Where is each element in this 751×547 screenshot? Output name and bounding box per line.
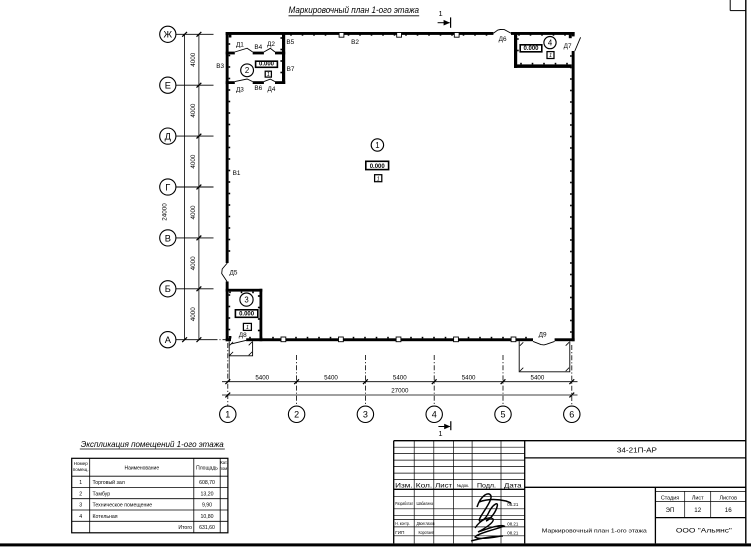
svg-text:В2: В2 [351, 39, 359, 46]
svg-text:0.000: 0.000 [370, 164, 386, 170]
svg-text:В6: В6 [254, 85, 262, 92]
svg-text:5400: 5400 [462, 374, 476, 381]
svg-text:Лист: Лист [692, 495, 704, 501]
svg-text:2: 2 [245, 66, 249, 75]
svg-text:13,20: 13,20 [201, 491, 214, 497]
svg-text:В4: В4 [254, 44, 262, 51]
svg-text:4: 4 [548, 39, 553, 48]
svg-text:27000: 27000 [391, 388, 409, 395]
svg-text:08.21: 08.21 [507, 530, 519, 535]
svg-text:1: 1 [79, 480, 82, 486]
svg-text:5400: 5400 [393, 374, 407, 381]
svg-text:5400: 5400 [531, 374, 545, 381]
svg-text:Н. контр.: Н. контр. [395, 521, 410, 526]
svg-text:Техническое помещение: Техническое помещение [93, 503, 153, 509]
svg-text:608,70: 608,70 [199, 480, 215, 486]
svg-text:Листов: Листов [719, 495, 737, 501]
svg-text:34-21П-АР: 34-21П-АР [617, 445, 657, 454]
svg-text:08.21: 08.21 [507, 522, 519, 527]
svg-text:Двоеглазов: Двоеглазов [417, 521, 435, 526]
svg-text:4000: 4000 [190, 154, 197, 169]
svg-text:ГИП: ГИП [395, 530, 404, 535]
svg-text:1: 1 [246, 325, 249, 331]
svg-text:Д6: Д6 [499, 36, 507, 43]
svg-text:Д8: Д8 [239, 332, 247, 339]
svg-text:В5: В5 [286, 39, 294, 46]
svg-text:9,90: 9,90 [202, 503, 212, 509]
svg-text:Д3: Д3 [236, 86, 244, 93]
svg-text:0.000: 0.000 [523, 46, 539, 52]
svg-text:4000: 4000 [190, 205, 197, 220]
svg-text:2: 2 [79, 491, 82, 497]
svg-text:Итого: Итого [178, 525, 192, 531]
svg-text:А: А [165, 335, 172, 345]
svg-text:4000: 4000 [190, 256, 197, 271]
svg-text:1: 1 [439, 9, 443, 18]
svg-text:Маркировочный план 1-ого этажа: Маркировочный план 1-ого этажа [289, 5, 420, 15]
svg-text:4000: 4000 [190, 52, 197, 67]
svg-text:5400: 5400 [324, 374, 338, 381]
svg-text:1: 1 [377, 176, 380, 182]
svg-text:Торговый зал: Торговый зал [93, 479, 125, 486]
svg-text:4: 4 [432, 410, 437, 420]
svg-text:5400: 5400 [255, 374, 269, 381]
svg-text:Д: Д [165, 132, 172, 142]
svg-text:Наименование: Наименование [124, 466, 159, 472]
svg-text:Д5: Д5 [230, 269, 238, 276]
svg-text:Б: Б [165, 284, 171, 294]
svg-text:пом.: пом. [220, 466, 229, 471]
svg-text:Дата: Дата [504, 483, 522, 489]
svg-text:5: 5 [500, 410, 505, 420]
svg-text:0.000: 0.000 [239, 312, 255, 318]
svg-text:В3: В3 [216, 63, 224, 70]
svg-text:Подл.: Подл. [477, 483, 496, 489]
svg-text:16: 16 [725, 507, 732, 514]
svg-text:Котельная: Котельная [93, 514, 118, 520]
svg-text:10,80: 10,80 [201, 514, 214, 520]
svg-text:Д7: Д7 [564, 43, 572, 50]
svg-text:1: 1 [549, 53, 552, 59]
svg-text:В1: В1 [233, 170, 241, 177]
svg-text:Г: Г [165, 182, 170, 192]
svg-text:1: 1 [375, 141, 379, 150]
svg-text:Коротаев: Коротаев [419, 530, 435, 535]
svg-text:Кат.: Кат. [220, 460, 227, 465]
svg-text:4000: 4000 [190, 307, 197, 322]
svg-text:ЭП: ЭП [666, 507, 675, 514]
svg-text:631,60: 631,60 [199, 525, 215, 531]
svg-text:Д1: Д1 [236, 42, 244, 49]
svg-text:Разработал: Разработал [395, 501, 413, 506]
svg-text:помещ.: помещ. [73, 467, 89, 472]
svg-text:В: В [165, 233, 171, 243]
svg-text:3: 3 [363, 410, 368, 420]
svg-text:24000: 24000 [162, 203, 169, 221]
svg-text:Шабалина: Шабалина [417, 501, 434, 506]
svg-text:Номер: Номер [74, 461, 89, 466]
svg-text:6: 6 [569, 410, 574, 420]
svg-text:4: 4 [79, 514, 82, 520]
svg-text:№док.: №док. [457, 483, 470, 488]
svg-text:1: 1 [267, 72, 270, 78]
svg-text:Стадия: Стадия [661, 495, 679, 501]
svg-text:1: 1 [225, 410, 230, 420]
svg-text:Экспликация помещений 1-ого эт: Экспликация помещений 1-ого этажа [81, 440, 224, 449]
svg-text:Площадь: Площадь [196, 466, 218, 472]
svg-text:Тамбур: Тамбур [93, 491, 111, 497]
svg-text:2: 2 [294, 410, 299, 420]
svg-text:3: 3 [244, 296, 248, 305]
svg-text:В7: В7 [287, 66, 295, 73]
svg-text:3: 3 [79, 503, 82, 509]
svg-text:Ж: Ж [164, 30, 173, 40]
svg-text:4000: 4000 [190, 103, 197, 118]
svg-text:Д4: Д4 [268, 86, 276, 93]
svg-text:Изм.: Изм. [395, 483, 413, 489]
svg-text:Е: Е [165, 81, 171, 91]
svg-text:Кол.: Кол. [416, 483, 433, 489]
svg-text:1: 1 [438, 429, 442, 438]
svg-text:Лист: Лист [435, 483, 452, 489]
svg-text:Д2: Д2 [267, 41, 275, 48]
svg-text:Маркировочный план 1-ого этажа: Маркировочный план 1-ого этажа [542, 527, 647, 534]
svg-text:ООО "Альянс": ООО "Альянс" [676, 528, 733, 535]
svg-text:Д9: Д9 [539, 331, 547, 338]
svg-text:12: 12 [694, 507, 701, 514]
svg-text:0.000: 0.000 [259, 62, 275, 68]
